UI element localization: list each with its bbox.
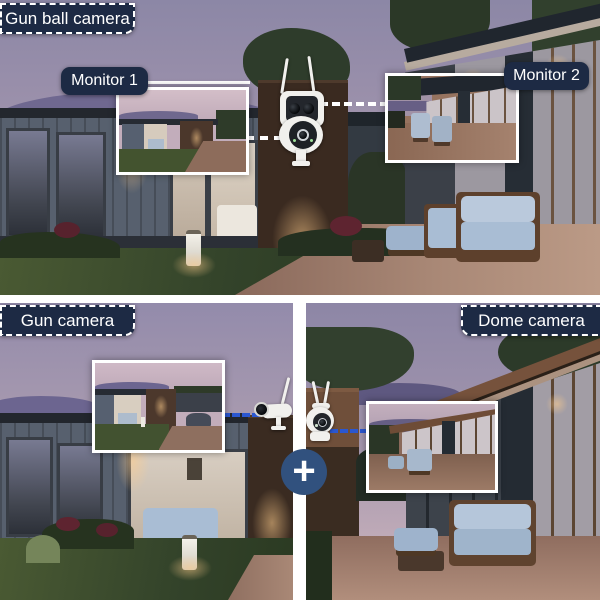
sofa-seat-cushion — [461, 222, 535, 250]
sofa — [456, 192, 540, 262]
camera-lens — [303, 103, 314, 114]
sofa — [449, 500, 536, 566]
top-panel: Gun ball camera Monitor 1 Monitor 2 — [0, 0, 600, 295]
plus-icon-glyph: + — [292, 451, 315, 491]
monitor1-label-text: Monitor 1 — [71, 72, 138, 90]
bottom-right-panel: Dome camera — [306, 303, 600, 600]
picture-frame — [187, 458, 202, 480]
gun-camera-tag-label: Gun camera — [21, 311, 115, 331]
camera-antenna — [280, 58, 289, 94]
gun-camera-tag: Gun camera — [0, 305, 135, 336]
camera-mount-base — [271, 426, 286, 430]
side-table — [398, 551, 444, 571]
camera-lens — [297, 129, 309, 141]
inset-bollard — [141, 417, 145, 427]
camera-ball-face — [313, 413, 331, 431]
inset-greenery — [388, 76, 421, 100]
inset-car — [186, 413, 210, 427]
window — [6, 128, 50, 238]
camera-ir-led — [315, 424, 318, 427]
dome-camera-tag: Dome camera — [461, 305, 600, 336]
horizontal-divider — [0, 295, 600, 303]
camera-lens — [289, 103, 300, 114]
ceiling-light — [546, 393, 568, 415]
gun-ball-camera-device — [270, 52, 334, 167]
bottom-left-panel: Gun camera — [0, 303, 293, 600]
gun-camera-device — [252, 375, 293, 435]
agave-plant — [26, 535, 60, 563]
sofa-back-cushion — [461, 196, 535, 222]
camera-antenna — [323, 381, 330, 405]
light-glass — [533, 363, 600, 538]
gun-camera-inset — [92, 360, 225, 453]
red-flowers — [330, 216, 362, 236]
dome-camera-tag-label: Dome camera — [478, 311, 585, 331]
monitor1-inset — [116, 87, 249, 175]
bollard-glow — [168, 555, 212, 581]
camera-marketing-poster: Gun ball camera Monitor 1 Monitor 2 — [0, 0, 600, 600]
dome-camera-inset — [366, 401, 498, 493]
camera-ir-led — [293, 139, 296, 142]
camera-antenna — [281, 377, 290, 405]
camera-ir-led — [310, 139, 313, 142]
sofa-back-cushion — [454, 504, 531, 529]
inset-lamp-glow — [190, 127, 203, 150]
inset-ottoman — [388, 456, 404, 470]
bollard-glow — [172, 252, 216, 278]
monitor2-inset — [385, 73, 519, 163]
sofa-seat-cushion — [454, 529, 531, 555]
red-flowers — [96, 523, 118, 537]
monitor2-label-text: Monitor 2 — [513, 67, 580, 85]
inset-green-roof — [174, 386, 222, 393]
inset-sofa — [407, 449, 432, 471]
inset-lounger — [411, 113, 430, 138]
inset-lounger — [432, 116, 452, 141]
camera-ball-face — [289, 121, 317, 149]
inset-deck — [388, 123, 516, 160]
camera-lens — [254, 402, 269, 417]
red-flowers — [54, 222, 80, 238]
inset-mountains — [388, 101, 429, 111]
side-table — [352, 240, 384, 262]
dome-camera-device — [306, 379, 340, 445]
red-flowers — [56, 517, 80, 531]
gun-ball-camera-tag-label: Gun ball camera — [5, 9, 130, 29]
camera-lens — [318, 418, 327, 427]
camera-mount-base — [292, 161, 310, 166]
camera-antenna — [312, 381, 319, 405]
monitor1-label: Monitor 1 — [61, 67, 148, 95]
camera-mount-base — [310, 432, 330, 441]
monitor1-pointer-line — [146, 81, 250, 84]
gun-ball-camera-tag: Gun ball camera — [0, 3, 135, 34]
inset-planter — [388, 111, 405, 128]
inset-lamp-glow — [154, 395, 167, 418]
camera-antenna — [307, 56, 315, 94]
window — [6, 437, 53, 537]
bushes — [306, 531, 332, 600]
inset-greenery — [216, 110, 246, 140]
monitor2-label: Monitor 2 — [504, 62, 589, 90]
ottoman — [394, 528, 438, 551]
plus-icon: + — [281, 449, 327, 495]
inset-grass — [95, 424, 169, 450]
